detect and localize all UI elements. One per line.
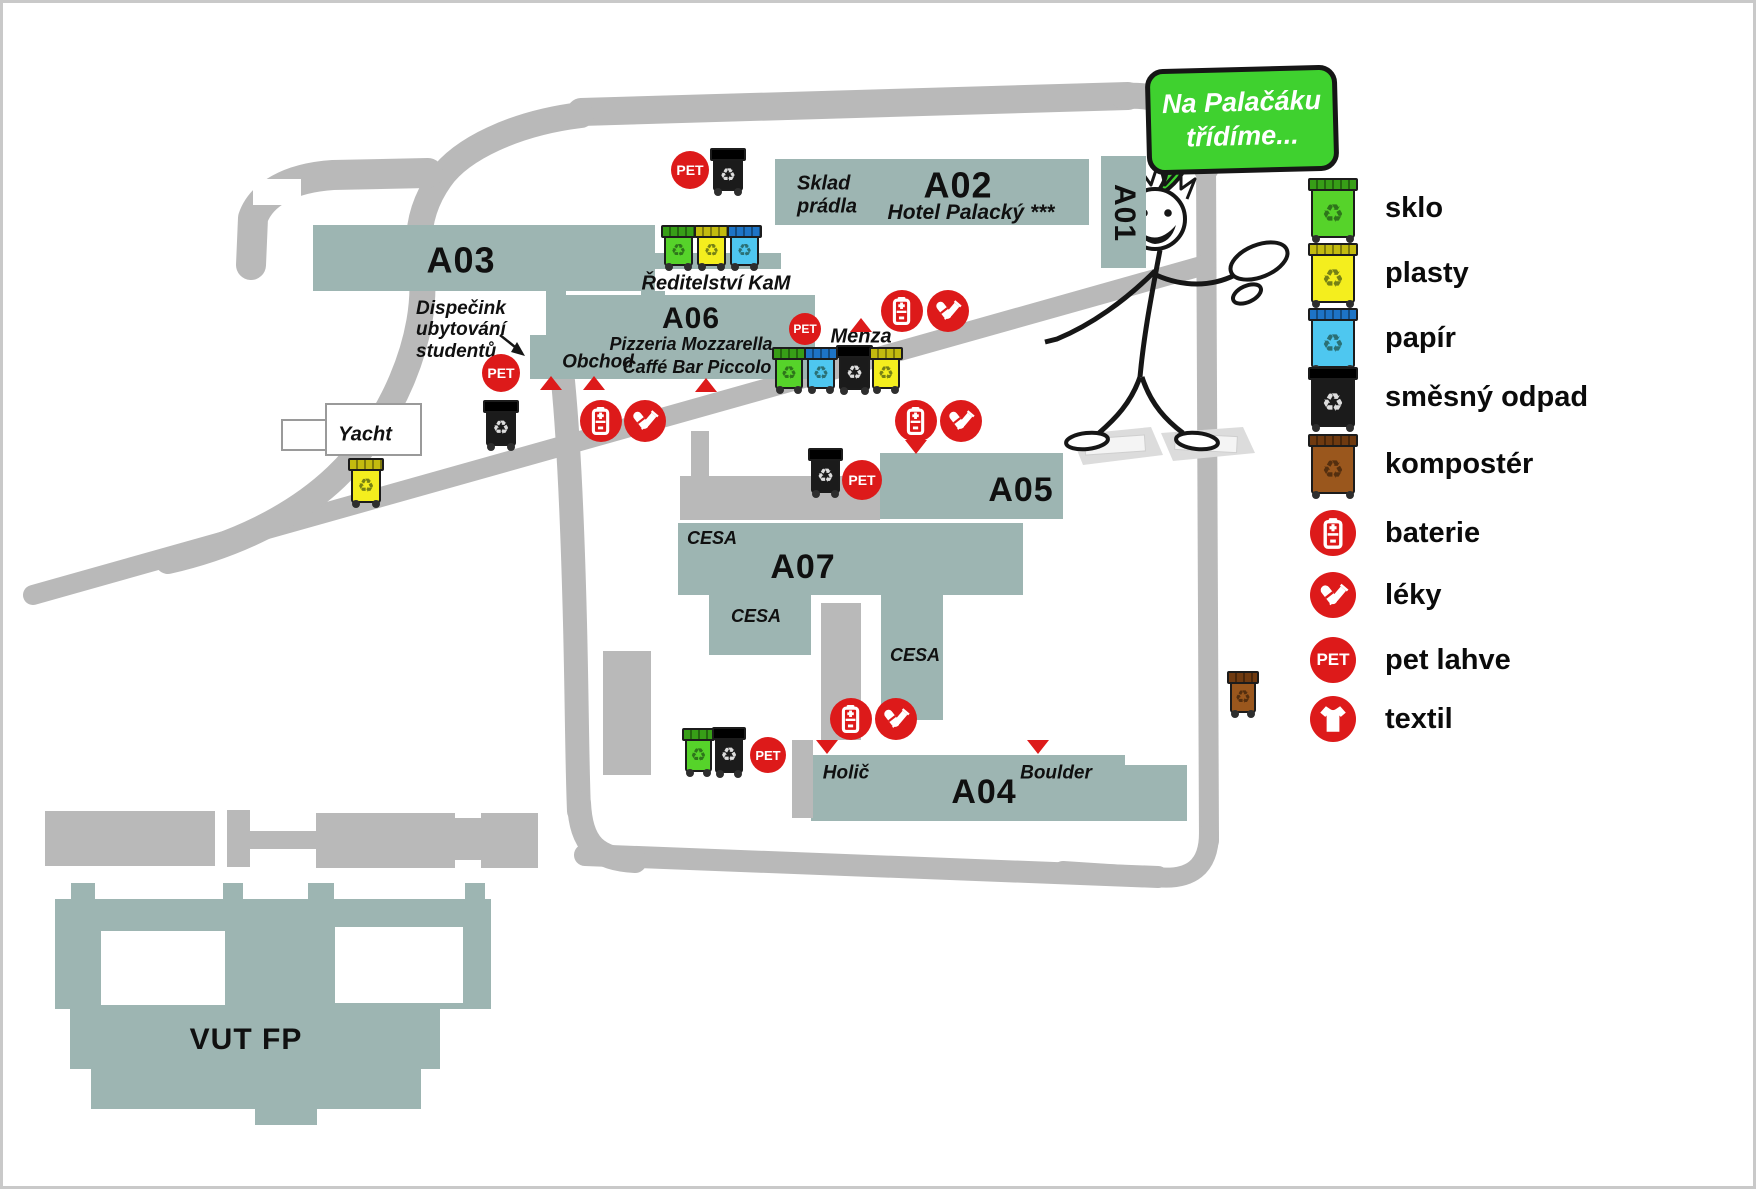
map-label-boulder: Boulder xyxy=(1020,762,1092,783)
footpath xyxy=(603,651,651,775)
bin-black-icon: ♻ xyxy=(713,148,743,191)
bin-wheel xyxy=(507,443,515,451)
road-notch xyxy=(253,179,301,205)
legend-icon-box: ♻ xyxy=(1307,308,1359,368)
bin-body: ♻ xyxy=(713,161,743,191)
map-label-a01: A01 xyxy=(1107,184,1141,242)
bin-lid xyxy=(694,225,729,238)
bin-body: ♻ xyxy=(730,238,759,266)
legend-item-pet-lahve: PETpet lahve xyxy=(1307,628,1511,692)
medicine-marker-icon xyxy=(624,400,666,442)
legend-item-plasty: ♻plasty xyxy=(1307,241,1469,305)
pet-marker-icon: PET xyxy=(1310,637,1356,683)
pet-marker-icon: PET xyxy=(482,354,520,392)
medicine-glyph xyxy=(932,295,963,326)
courtyard xyxy=(335,927,463,1003)
bin-blue-icon: ♻ xyxy=(807,347,835,389)
building-VUTFP-foot xyxy=(255,1109,317,1125)
medicine-glyph xyxy=(1316,578,1350,612)
speech-bubble-line2: třídíme... xyxy=(1186,119,1299,156)
pet-marker-icon: PET xyxy=(789,313,821,345)
textile-glyph xyxy=(1316,702,1350,736)
bin-wheel xyxy=(714,188,722,196)
recycle-glyph: ♻ xyxy=(813,363,829,384)
bin-body: ♻ xyxy=(1311,191,1355,238)
pet-text: PET xyxy=(755,748,780,763)
medicine-glyph xyxy=(880,703,911,734)
recycle-glyph: ♻ xyxy=(1322,455,1344,485)
road xyxy=(581,96,1128,112)
legend-item-papír: ♻papír xyxy=(1307,306,1456,370)
bin-wheel xyxy=(840,387,848,395)
bin-lid xyxy=(661,225,696,238)
building-A04-step xyxy=(1125,765,1187,821)
bin-wheel xyxy=(873,386,881,394)
recycle-glyph: ♻ xyxy=(720,744,737,767)
bin-body: ♻ xyxy=(664,238,693,266)
battery-glyph xyxy=(1316,516,1350,550)
bin-body: ♻ xyxy=(697,238,726,266)
road xyxy=(585,855,1158,877)
map-label-cesa: CESA xyxy=(687,528,737,548)
legend-item-textil: textil xyxy=(1307,687,1453,751)
campus-recycling-map: A02Hotel Palacký ***Sklad prádlaA01A03Ře… xyxy=(0,0,1756,1189)
legend-label: plasty xyxy=(1385,257,1469,290)
speech-bubble: Na Palačáku třídíme... xyxy=(1145,65,1340,176)
bin-wheel xyxy=(794,386,802,394)
bin-wheel xyxy=(812,490,820,498)
recycle-glyph: ♻ xyxy=(1322,199,1344,229)
recycle-glyph: ♻ xyxy=(737,241,752,261)
bin-body: ♻ xyxy=(486,413,516,446)
bin-body: ♻ xyxy=(872,360,900,389)
legend-label: kompostér xyxy=(1385,448,1533,481)
map-label-holič: Holič xyxy=(823,762,869,783)
map-label-hotel-palacký-***: Hotel Palacký *** xyxy=(888,201,1055,225)
map-label-a06: A06 xyxy=(662,302,720,336)
bin-wheel xyxy=(1312,424,1320,432)
battery-marker-icon xyxy=(830,698,872,740)
bin-wheel xyxy=(826,386,834,394)
legend-label: pet lahve xyxy=(1385,644,1511,677)
pet-marker-icon: PET xyxy=(842,460,882,500)
map-label-caffé-bar-piccolo: Caffé Bar Piccolo xyxy=(623,357,772,377)
bin-blue-icon: ♻ xyxy=(730,225,759,266)
medicine-marker-icon xyxy=(1310,572,1356,618)
pet-text: PET xyxy=(793,322,816,336)
recycle-glyph: ♻ xyxy=(492,417,509,440)
bin-lid xyxy=(808,448,843,461)
recycle-glyph: ♻ xyxy=(1322,264,1344,294)
road-bar xyxy=(455,818,481,860)
bin-green-icon: ♻ xyxy=(664,225,693,266)
recycle-glyph: ♻ xyxy=(357,475,374,498)
battery-marker-icon xyxy=(881,290,923,332)
bin-green-icon: ♻ xyxy=(1311,178,1355,238)
bin-wheel xyxy=(665,263,673,271)
textile-marker-icon xyxy=(1310,696,1356,742)
bin-body: ♻ xyxy=(685,741,712,772)
bin-body: ♻ xyxy=(1311,447,1355,494)
bin-yellow-icon: ♻ xyxy=(697,225,726,266)
recycle-glyph: ♻ xyxy=(720,165,736,186)
legend-item-sklo: ♻sklo xyxy=(1307,176,1443,240)
battery-glyph xyxy=(886,295,917,326)
bin-body: ♻ xyxy=(1230,684,1256,713)
recycle-glyph: ♻ xyxy=(1235,687,1251,708)
plaza-connector xyxy=(691,431,709,478)
battery-marker-icon xyxy=(580,400,622,442)
bin-lid xyxy=(682,728,715,741)
map-label-yacht: Yacht xyxy=(338,424,392,447)
legend-item-kompostér: ♻kompostér xyxy=(1307,432,1533,496)
medicine-glyph xyxy=(629,405,660,436)
map-label-cesa: CESA xyxy=(731,606,781,626)
pet-text: PET xyxy=(487,365,514,381)
legend-icon-box: ♻ xyxy=(1307,367,1359,427)
bin-wheel xyxy=(684,263,692,271)
bin-wheel xyxy=(734,188,742,196)
bin-wheel xyxy=(891,386,899,394)
bin-blue-icon: ♻ xyxy=(1311,308,1355,368)
bin-lid xyxy=(1308,178,1358,191)
bin-wheel xyxy=(352,500,360,508)
bin-body: ♻ xyxy=(715,740,743,773)
map-label-sklad-prádla: Sklad prádla xyxy=(797,172,857,217)
recycle-glyph: ♻ xyxy=(690,745,706,766)
bin-wheel xyxy=(716,770,724,778)
battery-marker-icon xyxy=(1310,510,1356,556)
bin-wheel xyxy=(372,500,380,508)
building-A07-c xyxy=(880,523,1023,595)
legend-label: papír xyxy=(1385,322,1456,355)
pet-text: PET xyxy=(848,472,875,488)
bin-lid xyxy=(348,458,384,471)
road-bar xyxy=(481,813,538,868)
entrance-arrow-icon xyxy=(905,440,927,454)
speech-bubble-line1: Na Palačáku xyxy=(1162,84,1322,122)
medicine-glyph xyxy=(945,405,976,436)
bin-body: ♻ xyxy=(1311,380,1355,427)
bin-lid xyxy=(836,345,873,358)
bin-wheel xyxy=(703,769,711,777)
medicine-marker-icon xyxy=(875,698,917,740)
bin-yellow-icon: ♻ xyxy=(351,458,381,503)
courtyard xyxy=(101,931,225,1005)
battery-glyph xyxy=(835,703,866,734)
bin-wheel xyxy=(698,263,706,271)
bin-green-icon: ♻ xyxy=(775,347,803,389)
map-label-vut-fp: VUT FP xyxy=(190,1023,303,1057)
entrance-arrow-icon xyxy=(695,378,717,392)
road xyxy=(563,381,579,811)
road xyxy=(579,803,635,861)
legend-icon-box xyxy=(1307,510,1359,556)
bin-wheel xyxy=(717,263,725,271)
entrance-arrow-icon xyxy=(850,318,872,332)
legend-icon-box: PET xyxy=(1307,637,1359,683)
road-bar xyxy=(227,810,250,867)
bin-wheel xyxy=(1346,424,1354,432)
bin-body: ♻ xyxy=(1311,256,1355,303)
bin-black-icon: ♻ xyxy=(1311,367,1355,427)
bin-black-icon: ♻ xyxy=(811,448,840,493)
legend-icon-box xyxy=(1307,696,1359,742)
map-label-a07: A07 xyxy=(770,548,835,586)
road-bar xyxy=(316,813,455,868)
bin-wheel xyxy=(750,263,758,271)
bin-lid xyxy=(1308,434,1358,447)
bin-brown-icon: ♻ xyxy=(1230,671,1256,713)
legend-label: sklo xyxy=(1385,192,1443,225)
map-label-cesa: CESA xyxy=(890,645,940,665)
legend-icon-box: ♻ xyxy=(1307,178,1359,238)
bin-yellow-icon: ♻ xyxy=(1311,243,1355,303)
map-label-obchod: Obchod xyxy=(562,351,634,372)
bin-lid xyxy=(727,225,762,238)
road-bar xyxy=(250,831,316,849)
bin-yellow-icon: ♻ xyxy=(872,347,900,389)
battery-glyph xyxy=(585,405,616,436)
pet-text: PET xyxy=(1316,650,1349,670)
recycle-glyph: ♻ xyxy=(781,363,797,384)
entrance-arrow-icon xyxy=(816,740,838,754)
bin-body: ♻ xyxy=(775,360,803,389)
entrance-arrow-icon xyxy=(540,376,562,390)
legend-item-směsný-odpad: ♻směsný odpad xyxy=(1307,365,1588,429)
bin-wheel xyxy=(1346,491,1354,499)
bin-wheel xyxy=(734,770,742,778)
bin-lid xyxy=(483,400,519,413)
bin-wheel xyxy=(487,443,495,451)
bin-body: ♻ xyxy=(807,360,835,389)
bin-wheel xyxy=(1247,710,1255,718)
legend-label: směsný odpad xyxy=(1385,381,1588,414)
bin-black-icon: ♻ xyxy=(486,400,516,446)
map-label-a05: A05 xyxy=(988,471,1053,509)
bin-body: ♻ xyxy=(351,471,381,503)
bin-wheel xyxy=(686,769,694,777)
bin-lid xyxy=(869,347,903,360)
bin-wheel xyxy=(731,263,739,271)
battery-marker-icon xyxy=(895,400,937,442)
bin-lid xyxy=(772,347,806,360)
legend-label: léky xyxy=(1385,579,1441,612)
bin-wheel xyxy=(808,386,816,394)
map-label-a04: A04 xyxy=(951,773,1016,811)
recycle-glyph: ♻ xyxy=(1322,329,1344,359)
recycle-glyph: ♻ xyxy=(878,363,894,384)
bin-black-icon: ♻ xyxy=(839,345,870,390)
legend-icon-box: ♻ xyxy=(1307,243,1359,303)
recycle-glyph: ♻ xyxy=(817,465,834,488)
bin-wheel xyxy=(831,490,839,498)
bin-lid xyxy=(710,148,746,161)
bin-black-icon: ♻ xyxy=(715,727,743,773)
bin-lid xyxy=(1308,367,1358,380)
pet-text: PET xyxy=(676,162,703,178)
bin-wheel xyxy=(776,386,784,394)
bin-lid xyxy=(1308,243,1358,256)
recycle-glyph: ♻ xyxy=(1322,388,1344,418)
bin-body: ♻ xyxy=(811,461,840,493)
footpath xyxy=(792,740,813,818)
recycle-glyph: ♻ xyxy=(671,241,686,261)
bin-green-icon: ♻ xyxy=(685,728,712,772)
bin-lid xyxy=(712,727,746,740)
road-bar xyxy=(45,811,215,866)
legend-label: textil xyxy=(1385,703,1453,736)
map-label-a03: A03 xyxy=(426,241,495,282)
map-label-dispečink-ubytování-studentů: Dispečink ubytování studentů xyxy=(416,298,506,362)
legend-label: baterie xyxy=(1385,517,1480,550)
recycle-glyph: ♻ xyxy=(846,362,863,385)
recycle-glyph: ♻ xyxy=(704,241,719,261)
bin-wheel xyxy=(1312,491,1320,499)
bin-wheel xyxy=(861,387,869,395)
battery-glyph xyxy=(900,405,931,436)
map-label-ředitelství-kam: Ředitelství KaM xyxy=(642,273,791,296)
medicine-marker-icon xyxy=(927,290,969,332)
bin-lid xyxy=(1308,308,1358,321)
bin-body: ♻ xyxy=(1311,321,1355,368)
entrance-arrow-icon xyxy=(583,376,605,390)
bin-wheel xyxy=(1231,710,1239,718)
bin-body: ♻ xyxy=(839,358,870,390)
building-yacht-annex xyxy=(281,419,329,451)
bin-brown-icon: ♻ xyxy=(1311,434,1355,494)
legend-icon-box xyxy=(1307,572,1359,618)
pet-marker-icon: PET xyxy=(750,737,786,773)
legend-icon-box: ♻ xyxy=(1307,434,1359,494)
building-VUTFP-low xyxy=(91,1069,421,1109)
bin-lid xyxy=(1227,671,1259,684)
entrance-arrow-icon xyxy=(1027,740,1049,754)
bin-lid xyxy=(804,347,838,360)
legend-item-baterie: baterie xyxy=(1307,501,1480,565)
legend-item-léky: léky xyxy=(1307,563,1441,627)
medicine-marker-icon xyxy=(940,400,982,442)
pet-marker-icon: PET xyxy=(671,151,709,189)
